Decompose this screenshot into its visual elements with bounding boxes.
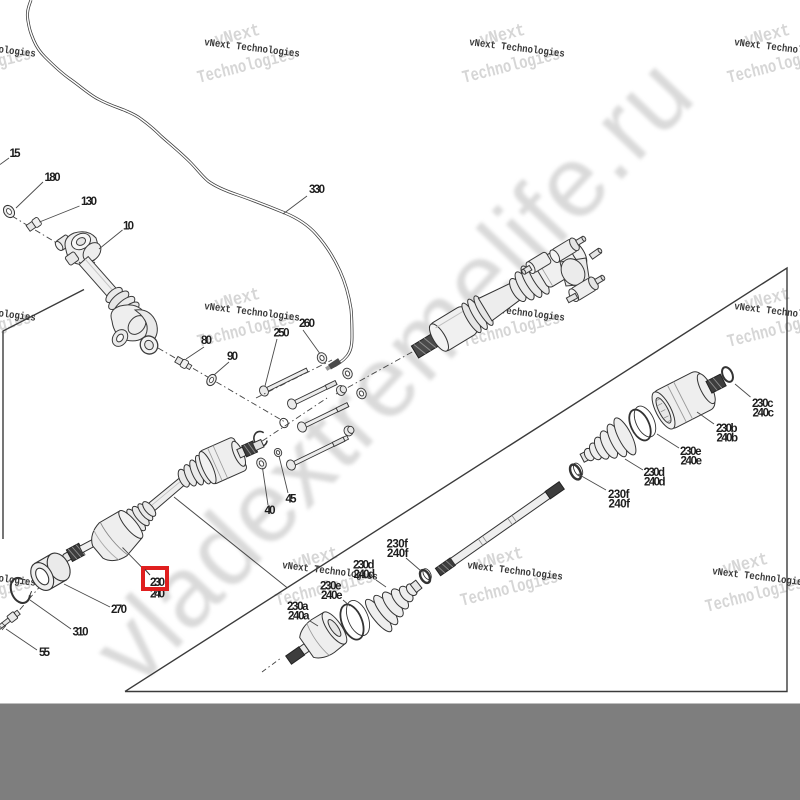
svg-text:240b: 240b	[717, 433, 739, 445]
svg-text:55: 55	[39, 647, 51, 659]
svg-text:230: 230	[150, 577, 165, 589]
svg-text:330: 330	[309, 184, 325, 196]
svg-text:240f: 240f	[387, 548, 409, 560]
svg-text:80: 80	[201, 335, 212, 347]
svg-text:260: 260	[299, 318, 315, 330]
svg-text:240c: 240c	[753, 407, 775, 419]
svg-text:250: 250	[274, 328, 290, 340]
svg-text:180: 180	[45, 172, 61, 184]
svg-text:310: 310	[73, 627, 89, 639]
svg-text:240f: 240f	[609, 499, 631, 511]
svg-text:240d: 240d	[644, 477, 666, 489]
svg-text:40: 40	[265, 505, 276, 517]
svg-text:90: 90	[227, 351, 238, 363]
svg-text:130: 130	[81, 196, 97, 208]
svg-text:270: 270	[111, 604, 127, 616]
svg-text:10: 10	[123, 221, 134, 233]
svg-text:240d: 240d	[354, 569, 376, 581]
svg-text:240a: 240a	[288, 611, 310, 623]
svg-text:15: 15	[10, 148, 22, 160]
svg-text:240e: 240e	[321, 590, 343, 602]
svg-text:45: 45	[286, 494, 298, 506]
svg-text:240e: 240e	[681, 456, 703, 468]
